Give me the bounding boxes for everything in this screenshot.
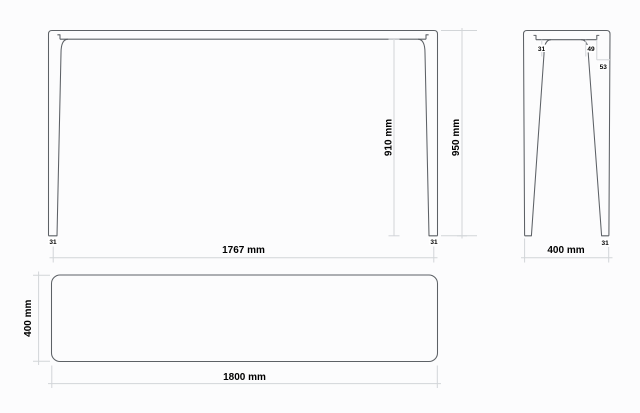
dim-side-top-c: 53 (597, 40, 610, 71)
plan-length-label: 1800 mm (223, 372, 266, 383)
dim-plan-length: 1800 mm (48, 366, 441, 389)
side-view: 31 49 53 400 mm 31 (521, 31, 613, 263)
side-foot-dim: 31 (600, 239, 610, 247)
side-left-notch (534, 35, 537, 39)
front-left-foot-label: 31 (49, 239, 57, 246)
dim-side-top-a: 31 (537, 40, 546, 57)
front-width-label: 1767 mm (222, 245, 265, 256)
plan-outline (52, 275, 438, 362)
side-outline (524, 31, 611, 236)
front-right-foot-dim: 31 (429, 237, 439, 246)
front-height-label: 950 mm (451, 119, 462, 156)
dim-side-depth: 400 mm (521, 239, 613, 263)
front-left-foot-dim: 31 (48, 237, 58, 246)
plan-depth-label: 400 mm (23, 299, 34, 336)
side-top-c-label: 53 (600, 64, 608, 71)
side-right-notch (597, 35, 600, 39)
side-top-b-label: 49 (587, 46, 595, 53)
front-clearance-label: 910 mm (384, 119, 395, 156)
dim-front-clearance: 910 mm (384, 39, 400, 236)
dim-front-height: 950 mm (441, 28, 477, 239)
side-left-leg-inner (525, 40, 551, 236)
front-right-foot-label: 31 (430, 239, 438, 246)
front-left-notch (57, 35, 60, 39)
front-left-leg-inner (49, 39, 69, 236)
front-view: 910 mm 950 mm 1767 mm 31 31 (48, 28, 477, 263)
technical-drawing-canvas: 910 mm 950 mm 1767 mm 31 31 (0, 0, 640, 413)
side-foot-label: 31 (601, 240, 609, 247)
side-depth-label: 400 mm (547, 245, 584, 256)
front-right-notch (426, 35, 429, 39)
plan-view: 400 mm 1800 mm (23, 272, 441, 389)
dim-plan-depth: 400 mm (23, 272, 50, 366)
front-right-leg-inner (418, 39, 438, 236)
side-top-a-label: 31 (538, 46, 546, 53)
dim-front-width: 1767 mm (50, 245, 438, 263)
front-outline (49, 31, 438, 236)
dim-side-top-b: 49 (586, 40, 596, 57)
drawing-svg: 910 mm 950 mm 1767 mm 31 31 (0, 0, 640, 413)
